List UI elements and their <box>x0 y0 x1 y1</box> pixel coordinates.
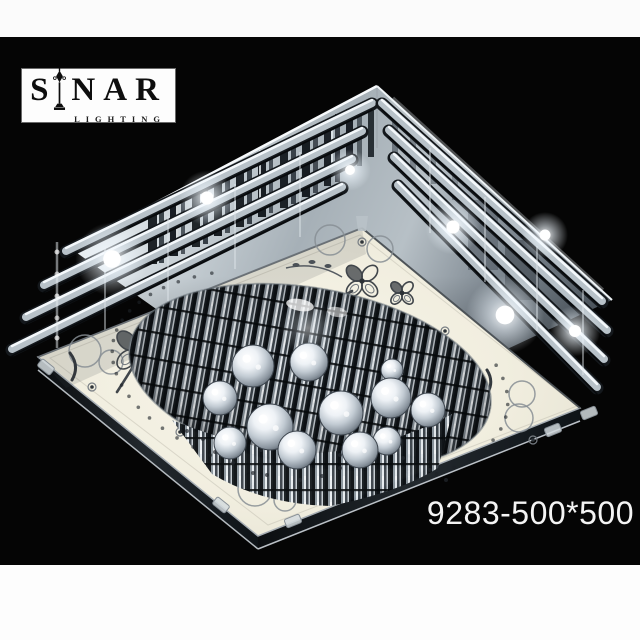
perforation-dot <box>191 445 195 449</box>
perforation-dot <box>468 458 472 462</box>
perforation-dot <box>149 293 153 297</box>
fringe-bead <box>401 456 405 460</box>
ball-sparkle <box>430 409 434 413</box>
crystal-ball <box>371 378 411 418</box>
gem-core <box>360 240 364 244</box>
brand-letter-s: S <box>30 74 48 107</box>
gem-core <box>443 329 447 333</box>
fringe-bead <box>444 478 448 482</box>
clover-center <box>400 291 405 296</box>
perforation-dot <box>111 361 115 365</box>
ball-sparkle <box>344 411 350 417</box>
perforation-dot <box>175 436 179 440</box>
ball-sparkle <box>393 396 398 401</box>
led-core <box>540 230 551 241</box>
perforation-dot <box>452 466 456 470</box>
perforation-dot <box>505 390 509 394</box>
fringe-bead <box>251 471 255 475</box>
perforation-dot <box>161 426 165 430</box>
ball-sparkle <box>362 449 367 454</box>
ball-sparkle <box>389 440 393 444</box>
ball-sparkle <box>381 387 389 395</box>
fringe-bead <box>338 453 342 457</box>
ball-sparkle <box>311 360 316 365</box>
perforation-dot <box>162 286 166 290</box>
ball-sparkle <box>259 414 268 423</box>
perforation-dot <box>137 300 141 304</box>
ball-sparkle <box>212 389 219 396</box>
ball-sparkle <box>243 354 251 362</box>
crystal-ball <box>214 427 246 459</box>
perforation-dot <box>120 318 124 322</box>
perforation-dot <box>128 309 132 313</box>
fringe-bead <box>320 474 324 478</box>
ball-sparkle <box>387 364 391 368</box>
panel-clip <box>580 406 598 420</box>
led-core <box>446 220 459 233</box>
crystal-ball <box>232 345 274 387</box>
perforation-dot <box>120 383 124 387</box>
ball-sparkle <box>222 434 228 440</box>
brand-letters-nar: NAR <box>71 74 167 107</box>
led-core <box>569 325 581 337</box>
crystal-ball <box>203 381 237 415</box>
perforation-dot <box>415 477 419 481</box>
perforation-dot <box>110 350 114 354</box>
perforation-dot <box>115 328 119 332</box>
perforation-dot <box>137 405 141 409</box>
led-core <box>103 250 121 268</box>
vine-leaf <box>309 260 316 264</box>
perforation-dot <box>481 449 485 453</box>
panel-top-connector <box>356 216 368 231</box>
ball-sparkle <box>256 364 261 369</box>
ball-sparkle <box>273 425 279 431</box>
led-core <box>496 306 515 325</box>
perforation-dot <box>193 275 197 279</box>
fringe-bead <box>298 478 302 482</box>
perforation-dot <box>491 438 495 442</box>
crystal-ball <box>411 393 445 427</box>
vine-leaf <box>293 263 300 267</box>
perforation-dot <box>499 427 503 431</box>
fringe-bead <box>231 461 235 465</box>
fringe-bead <box>265 473 269 477</box>
fringe-bead <box>185 429 189 433</box>
perforation-dot <box>506 403 510 407</box>
perforation-dot <box>115 372 119 376</box>
brand-subtitle: LIGHTING <box>74 114 166 124</box>
perforation-dot <box>148 416 152 420</box>
perforation-dot <box>209 453 213 457</box>
fringe-bead <box>201 437 205 441</box>
clover-center <box>360 279 365 284</box>
logo-box: S NAR LIGHTING <box>21 68 176 123</box>
ball-sparkle <box>393 369 396 372</box>
vine-leaf <box>325 264 332 268</box>
perforation-dot <box>494 363 498 367</box>
street-lamp-icon <box>51 67 68 113</box>
perforation-dot <box>112 339 116 343</box>
crystal-ball <box>278 431 316 469</box>
perforation-dot <box>435 472 439 476</box>
led-core <box>200 191 213 204</box>
gem-core <box>90 385 94 389</box>
perforation-dot <box>504 415 508 419</box>
product-photo: S NAR LIGHTING 9283-500*500 <box>0 37 640 565</box>
white-top-band <box>0 0 640 37</box>
ball-sparkle <box>288 440 296 448</box>
perforation-dot <box>176 280 180 284</box>
perforation-dot <box>127 394 131 398</box>
gem-core <box>531 438 535 442</box>
fringe-bead <box>428 468 432 472</box>
ball-sparkle <box>330 401 339 410</box>
crystal-ball <box>342 432 378 468</box>
brand-text: S NAR <box>30 67 167 113</box>
perforation-dot <box>210 271 214 275</box>
ball-sparkle <box>299 448 304 453</box>
product-code: 9283-500*500 <box>427 495 634 532</box>
led-core <box>345 165 355 175</box>
white-bottom-band <box>0 565 640 640</box>
ball-sparkle <box>232 442 236 446</box>
crystal-ball <box>319 391 363 435</box>
ball-sparkle <box>420 401 427 408</box>
fringe-bead <box>338 466 342 470</box>
ball-sparkle <box>351 440 358 447</box>
ball-sparkle <box>222 397 226 401</box>
perforation-dot <box>501 377 505 381</box>
ball-sparkle <box>380 433 386 439</box>
